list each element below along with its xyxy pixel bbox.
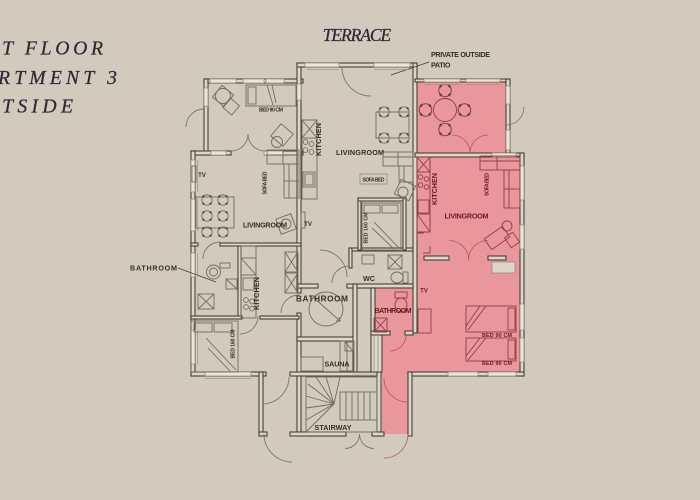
svg-text:SAUNA: SAUNA (325, 360, 350, 369)
svg-text:STAIRWAY: STAIRWAY (315, 423, 352, 432)
svg-text:BED 160 CM: BED 160 CM (231, 330, 237, 359)
svg-text:BED 90 CM: BED 90 CM (482, 333, 513, 339)
svg-text:SOFA BED: SOFA BED (363, 178, 385, 184)
svg-text:TV: TV (198, 173, 206, 179)
svg-text:SOFA BED: SOFA BED (263, 171, 269, 194)
svg-text:TERRACE: TERRACE (323, 25, 392, 45)
svg-text:BED 90 CM: BED 90 CM (259, 108, 283, 114)
svg-text:SOFA BED: SOFA BED (485, 173, 491, 196)
svg-text:BED 90 CM: BED 90 CM (482, 361, 513, 367)
svg-text:TV: TV (420, 289, 428, 295)
svg-text:PRIVATE OUTSIDE: PRIVATE OUTSIDE (431, 50, 490, 59)
svg-text:LIVINGROOM: LIVINGROOM (445, 212, 489, 221)
svg-text:LIVINGROOM: LIVINGROOM (243, 221, 287, 230)
svg-text:TV: TV (304, 222, 312, 228)
svg-text:BATHROOM: BATHROOM (130, 264, 177, 273)
svg-text:KITCHEN: KITCHEN (252, 277, 261, 310)
svg-text:PATIO: PATIO (431, 61, 451, 70)
svg-text:BED 160 CM: BED 160 CM (364, 213, 370, 244)
svg-text:WC: WC (363, 274, 375, 283)
svg-text:BATHROOM: BATHROOM (375, 306, 412, 315)
svg-text:KITCHEN: KITCHEN (314, 123, 323, 156)
svg-text:APARTMENT 3: APARTMENT 3 (0, 67, 117, 89)
svg-text:KITCHEN: KITCHEN (430, 173, 439, 205)
svg-text:OUTSIDE: OUTSIDE (0, 96, 73, 118)
svg-text:LIVINGROOM: LIVINGROOM (336, 148, 384, 157)
svg-text:BATHROOM: BATHROOM (296, 295, 348, 304)
